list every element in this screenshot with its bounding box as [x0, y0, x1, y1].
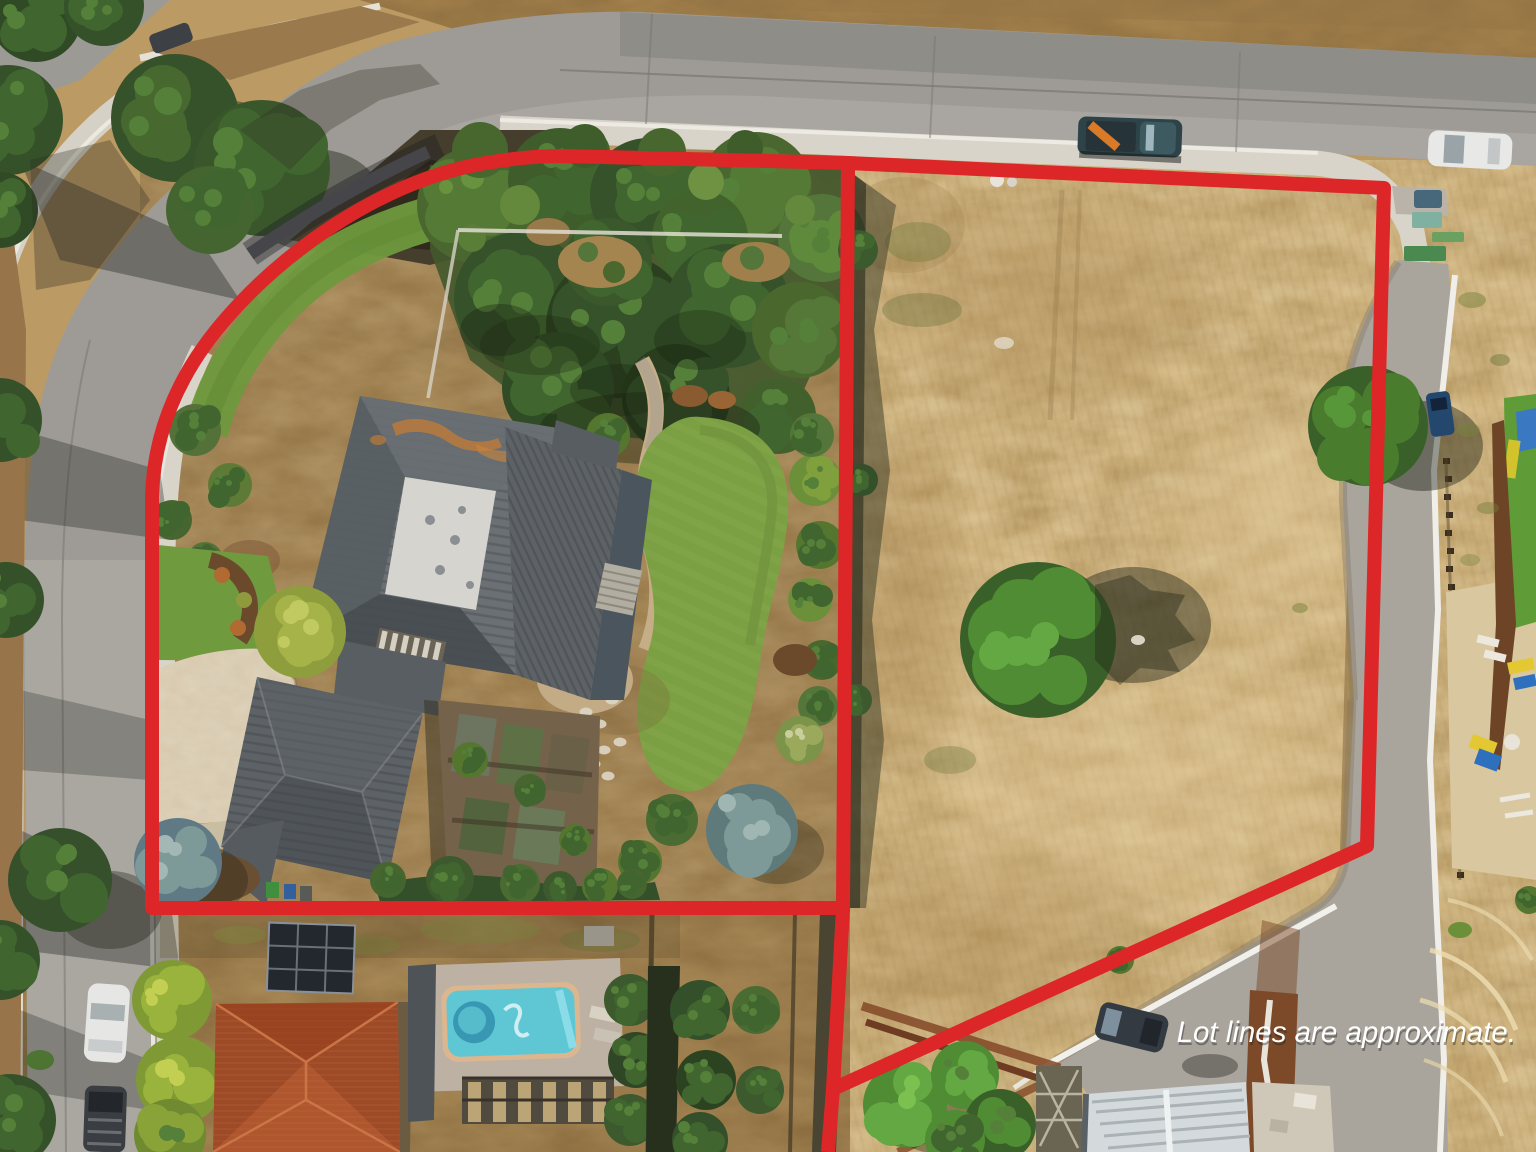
svg-text:Lot lines are approximate.: Lot lines are approximate.	[1177, 1016, 1516, 1049]
